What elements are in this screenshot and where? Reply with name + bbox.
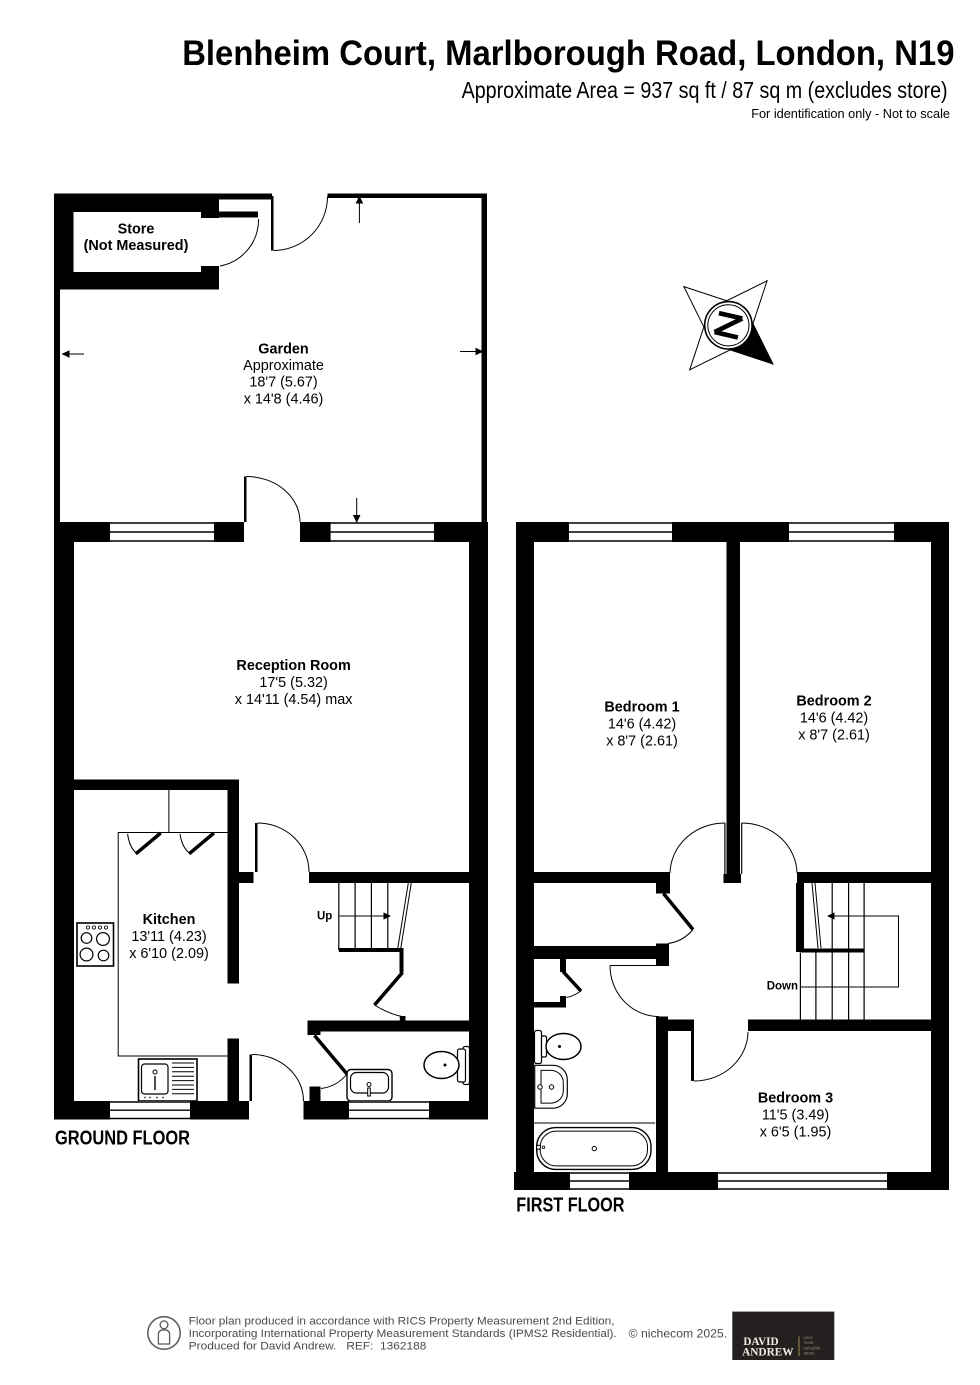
svg-text:11'5 (3.49): 11'5 (3.49) [762,1108,829,1124]
svg-text:GROUND FLOOR: GROUND FLOOR [55,1127,190,1149]
svg-text:Incorporating International Pr: Incorporating International Property Mea… [189,1328,617,1340]
svg-text:(Not Measured): (Not Measured) [84,238,189,254]
svg-text:Bedroom 1: Bedroom 1 [604,700,679,716]
svg-text:14'6 (4.42): 14'6 (4.42) [608,717,676,733]
svg-text:For identification only - Not: For identification only - Not to scale [751,106,950,121]
svg-text:Bedroom 3: Bedroom 3 [758,1091,833,1107]
svg-text:Floor plan produced in accorda: Floor plan produced in accordance with R… [189,1316,615,1328]
svg-text:Approximate: Approximate [243,358,324,374]
svg-text:14'6 (4.42): 14'6 (4.42) [800,711,868,727]
svg-text:Blenheim Court, Marlborough Ro: Blenheim Court, Marlborough Road, London… [182,34,954,73]
svg-text:18'7 (5.67): 18'7 (5.67) [249,375,317,391]
svg-text:Bedroom 2: Bedroom 2 [796,694,871,710]
svg-text:FIRST FLOOR: FIRST FLOOR [516,1195,624,1217]
svg-text:x 6'5 (1.95): x 6'5 (1.95) [760,1125,832,1141]
svg-text:17'5 (5.32): 17'5 (5.32) [259,675,327,691]
svg-text:Up: Up [317,911,332,923]
svg-text:x 6'10 (2.09): x 6'10 (2.09) [129,946,209,962]
svg-text:Approximate Area = 937 sq ft /: Approximate Area = 937 sq ft / 87 sq m (… [462,77,948,103]
svg-text:x 8'7 (2.61): x 8'7 (2.61) [606,734,678,750]
svg-text:asset: asset [804,1351,816,1356]
svg-text:13'11 (4.23): 13'11 (4.23) [131,929,206,945]
svg-text:x 14'8 (4.46): x 14'8 (4.46) [244,391,324,407]
svg-text:x 8'7 (2.61): x 8'7 (2.61) [798,728,870,744]
svg-text:Garden: Garden [258,341,308,357]
svg-text:Produced for David Andrew. R: Produced for David Andrew. REF: 1362188 [189,1341,427,1353]
svg-text:© nichecom 2025.: © nichecom 2025. [629,1326,728,1340]
svg-text:Reception Room: Reception Room [236,658,350,674]
svg-text:x 14'11 (4.54) max: x 14'11 (4.54) max [235,692,353,708]
svg-text:ANDREW: ANDREW [742,1344,794,1358]
svg-text:Down: Down [767,981,798,993]
svg-text:Kitchen: Kitchen [143,912,196,928]
svg-text:Store: Store [118,222,155,238]
